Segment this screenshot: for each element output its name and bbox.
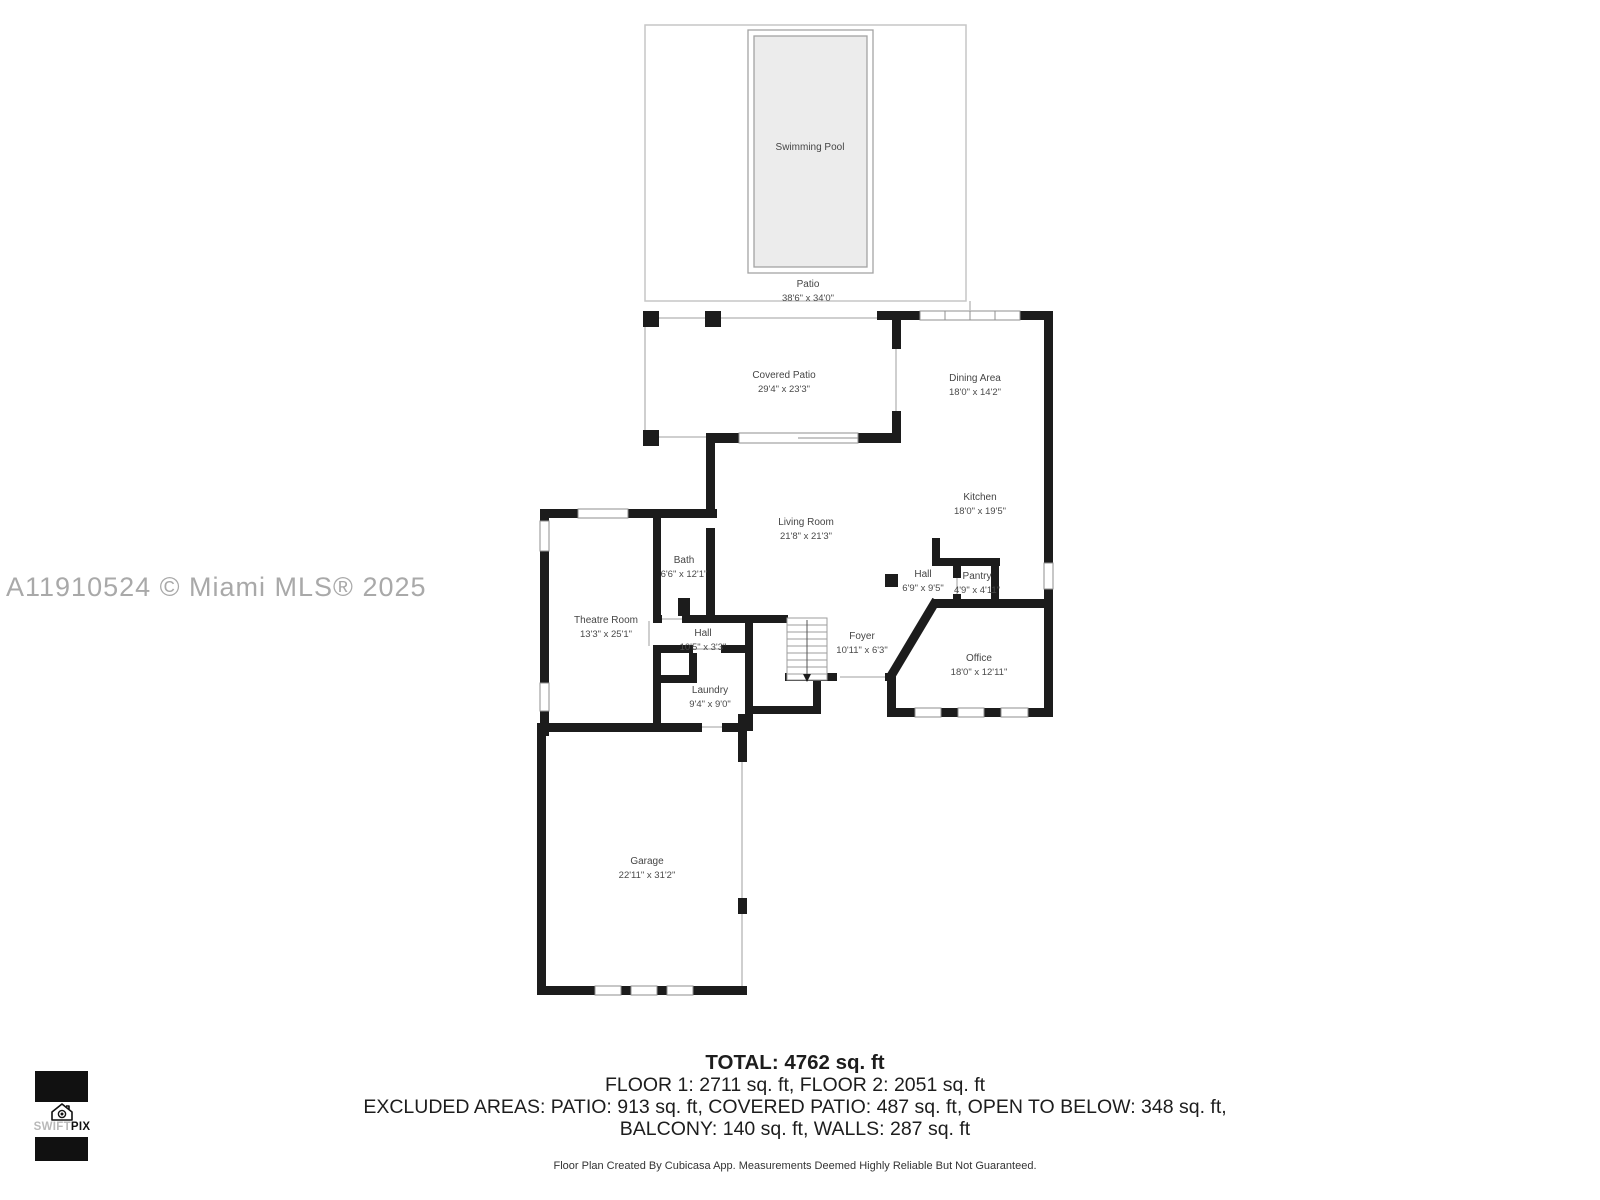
swiftpix-logo: SWIFTPIX [33, 1071, 91, 1161]
logo-block-top [35, 1071, 88, 1102]
room-label-patio: Patio 38'6" x 34'0" [782, 277, 834, 306]
room-label-swimming-pool: Swimming Pool [776, 140, 845, 155]
room-label-foyer: Foyer 10'11" x 6'3" [836, 629, 887, 658]
patio-pillars [643, 311, 721, 446]
excluded-areas-line1: EXCLUDED AREAS: PATIO: 913 sq. ft, COVER… [363, 1096, 1226, 1118]
room-label-bath: Bath 6'6" x 12'1" [661, 553, 708, 582]
room-label-covered-patio: Covered Patio 29'4" x 23'3" [752, 368, 815, 397]
room-label-pantry: Pantry 4'9" x 4'11" [954, 569, 1000, 598]
total-area-text: TOTAL: 4762 sq. ft [363, 1051, 1226, 1074]
excluded-areas-line2: BALCONY: 140 sq. ft, WALLS: 287 sq. ft [363, 1118, 1226, 1140]
room-label-living-room: Living Room 21'8" x 21'3" [778, 515, 834, 544]
logo-block-bottom [35, 1137, 88, 1161]
room-label-hall-kitchen: Hall 6'9" x 9'5" [902, 567, 944, 596]
room-label-laundry: Laundry 9'4" x 9'0" [689, 683, 731, 712]
mls-watermark: A11910524 © Miami MLS® 2025 [6, 572, 427, 603]
room-label-hall-lower: Hall 10'5" x 3'3" [680, 626, 727, 655]
staircase [787, 618, 827, 682]
diagonal-wall [891, 604, 934, 676]
disclaimer-text: Floor Plan Created By Cubicasa App. Meas… [553, 1160, 1036, 1172]
logo-wordmark: SWIFTPIX [33, 1122, 91, 1133]
room-label-dining-area: Dining Area 18'0" x 14'2" [949, 371, 1001, 400]
logo-swift-text: SWIFT [34, 1121, 71, 1133]
room-label-garage: Garage 22'11" x 31'2" [619, 854, 676, 883]
logo-pix-text: PIX [71, 1121, 90, 1133]
room-label-kitchen: Kitchen 18'0" x 19'5" [954, 490, 1006, 519]
room-label-theatre-room: Theatre Room 13'3" x 25'1" [574, 613, 638, 642]
floor-areas-text: FLOOR 1: 2711 sq. ft, FLOOR 2: 2051 sq. … [363, 1074, 1226, 1096]
room-label-office: Office 18'0" x 12'11" [951, 651, 1008, 680]
house-camera-icon [49, 1103, 75, 1121]
area-summary: TOTAL: 4762 sq. ft FLOOR 1: 2711 sq. ft,… [363, 1051, 1226, 1140]
